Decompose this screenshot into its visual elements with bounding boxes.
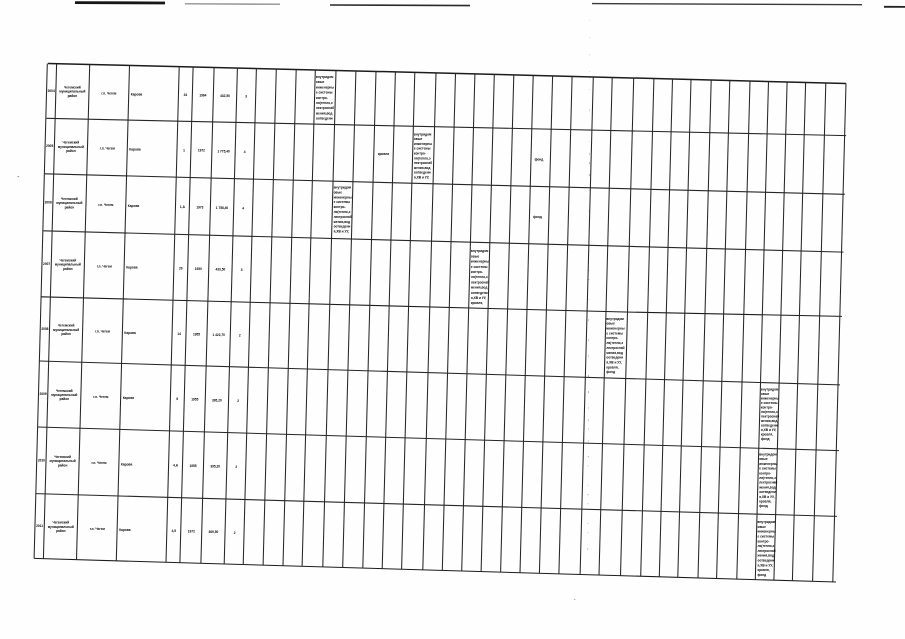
svg-text:г.п. Чегем: г.п. Чегем (100, 147, 116, 151)
svg-text:1972: 1972 (188, 530, 195, 534)
svg-text:г.п. Чегем: г.п. Чегем (95, 330, 111, 334)
svg-text:1972: 1972 (198, 149, 205, 153)
svg-text:Карова: Карова (124, 331, 136, 335)
svg-text:6: 6 (176, 397, 178, 401)
svg-text:2006: 2006 (45, 201, 52, 205)
svg-text:2007: 2007 (43, 262, 50, 266)
svg-text:Карова: Карова (121, 462, 133, 466)
svg-text:Карова: Карова (129, 148, 141, 152)
svg-text:2011: 2011 (36, 524, 43, 528)
svg-text:1955: 1955 (193, 332, 200, 336)
svg-text:г.п. Чегем: г.п. Чегем (91, 461, 107, 465)
svg-text:2: 2 (234, 531, 236, 535)
svg-text:1964: 1964 (199, 94, 206, 98)
svg-text:14: 14 (177, 332, 181, 336)
svg-text:4: 4 (242, 207, 244, 211)
svg-text:Карова: Карова (119, 528, 131, 532)
svg-text:1973: 1973 (196, 205, 203, 209)
svg-text:1 775,40: 1 775,40 (217, 149, 230, 153)
svg-text:395,20: 395,20 (212, 398, 222, 402)
svg-text:1955: 1955 (189, 464, 196, 468)
svg-text:2: 2 (237, 399, 239, 403)
svg-text:369,50: 369,50 (209, 530, 219, 534)
svg-text:Карова: Карова (123, 396, 135, 400)
svg-text:2009: 2009 (40, 392, 47, 396)
svg-text:2008: 2008 (41, 327, 48, 331)
svg-text:395,20: 395,20 (210, 465, 220, 469)
svg-text:4,5: 4,5 (172, 529, 177, 533)
svg-text:433,50: 433,50 (216, 268, 226, 272)
svg-text:2: 2 (239, 334, 241, 338)
svg-text:4,А: 4,А (173, 463, 179, 467)
svg-text:Карова: Карова (128, 204, 140, 208)
svg-text:фонд: фонд (533, 215, 542, 219)
svg-text:3: 3 (245, 95, 247, 99)
svg-text:1 758,40: 1 758,40 (216, 206, 229, 210)
svg-text:1 422,70: 1 422,70 (212, 333, 225, 337)
svg-text:кровля: кровля (378, 152, 389, 156)
svg-text:1950: 1950 (195, 267, 202, 271)
svg-text:432,50: 432,50 (220, 94, 230, 98)
svg-text:г.п. Чегем: г.п. Чегем (97, 264, 113, 268)
svg-text:г.п. Чегем: г.п. Чегем (101, 91, 117, 95)
svg-text:г.п. Чегем: г.п. Чегем (90, 527, 106, 531)
svg-text:1: 1 (183, 148, 185, 152)
svg-text:2: 2 (235, 465, 237, 469)
svg-text:1,А: 1,А (180, 205, 186, 209)
svg-text:г.п. Чегем: г.п. Чегем (98, 203, 114, 207)
svg-text:3: 3 (241, 268, 243, 272)
svg-text:2004: 2004 (48, 89, 55, 93)
svg-text:2010: 2010 (38, 459, 45, 463)
svg-text:24: 24 (184, 93, 188, 97)
svg-text:г.п. Чегем: г.п. Чегем (93, 395, 109, 399)
svg-text:Карова: Карова (131, 92, 143, 96)
svg-text:2005: 2005 (46, 144, 53, 148)
svg-text:фонд: фонд (535, 158, 544, 162)
svg-text:Карова: Карова (126, 266, 138, 270)
svg-text:20: 20 (179, 266, 183, 270)
svg-text:1955: 1955 (191, 398, 198, 402)
svg-text:4: 4 (244, 150, 246, 154)
